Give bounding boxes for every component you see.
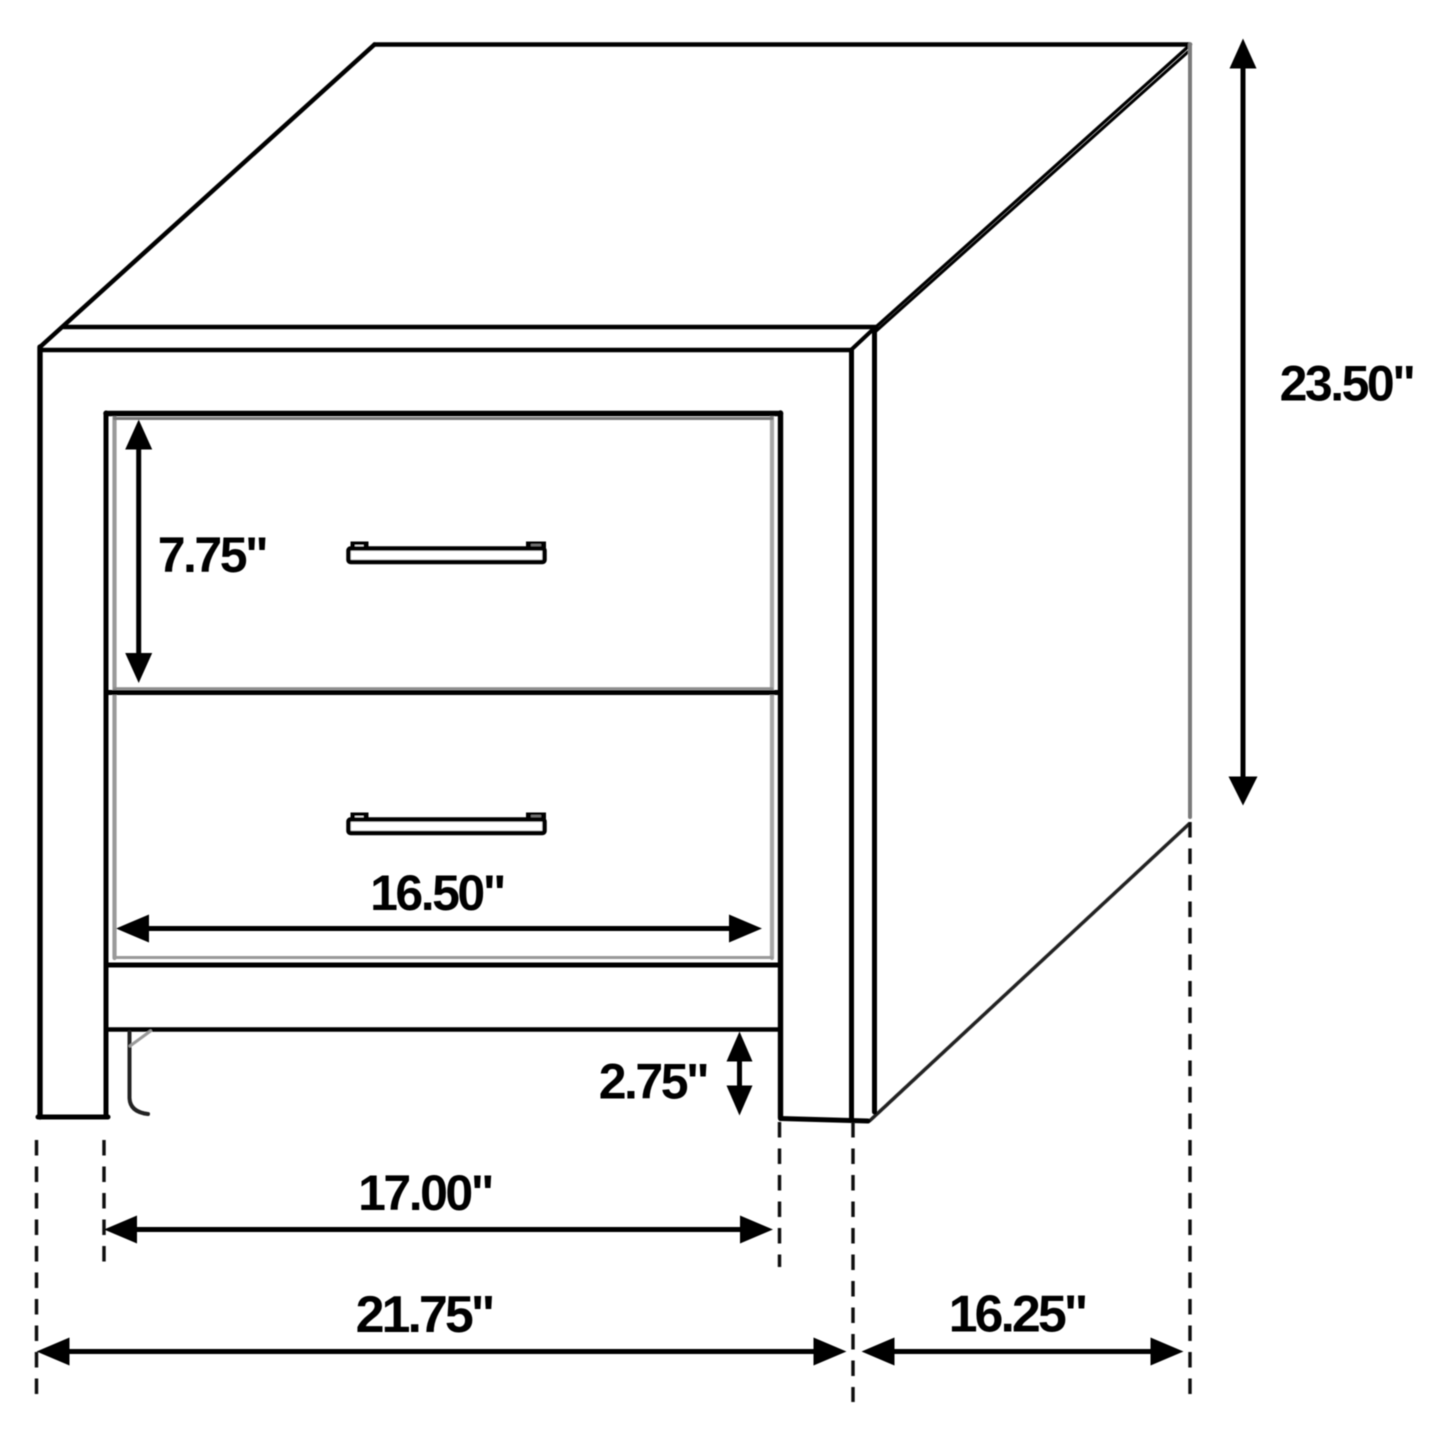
svg-text:21.75": 21.75"	[356, 1286, 493, 1344]
svg-text:17.00": 17.00"	[358, 1165, 492, 1221]
svg-text:7.75": 7.75"	[158, 527, 267, 583]
svg-text:23.50": 23.50"	[1280, 356, 1414, 412]
svg-text:16.25": 16.25"	[949, 1286, 1086, 1344]
svg-text:16.50": 16.50"	[370, 865, 504, 921]
svg-text:2.75": 2.75"	[599, 1053, 708, 1109]
